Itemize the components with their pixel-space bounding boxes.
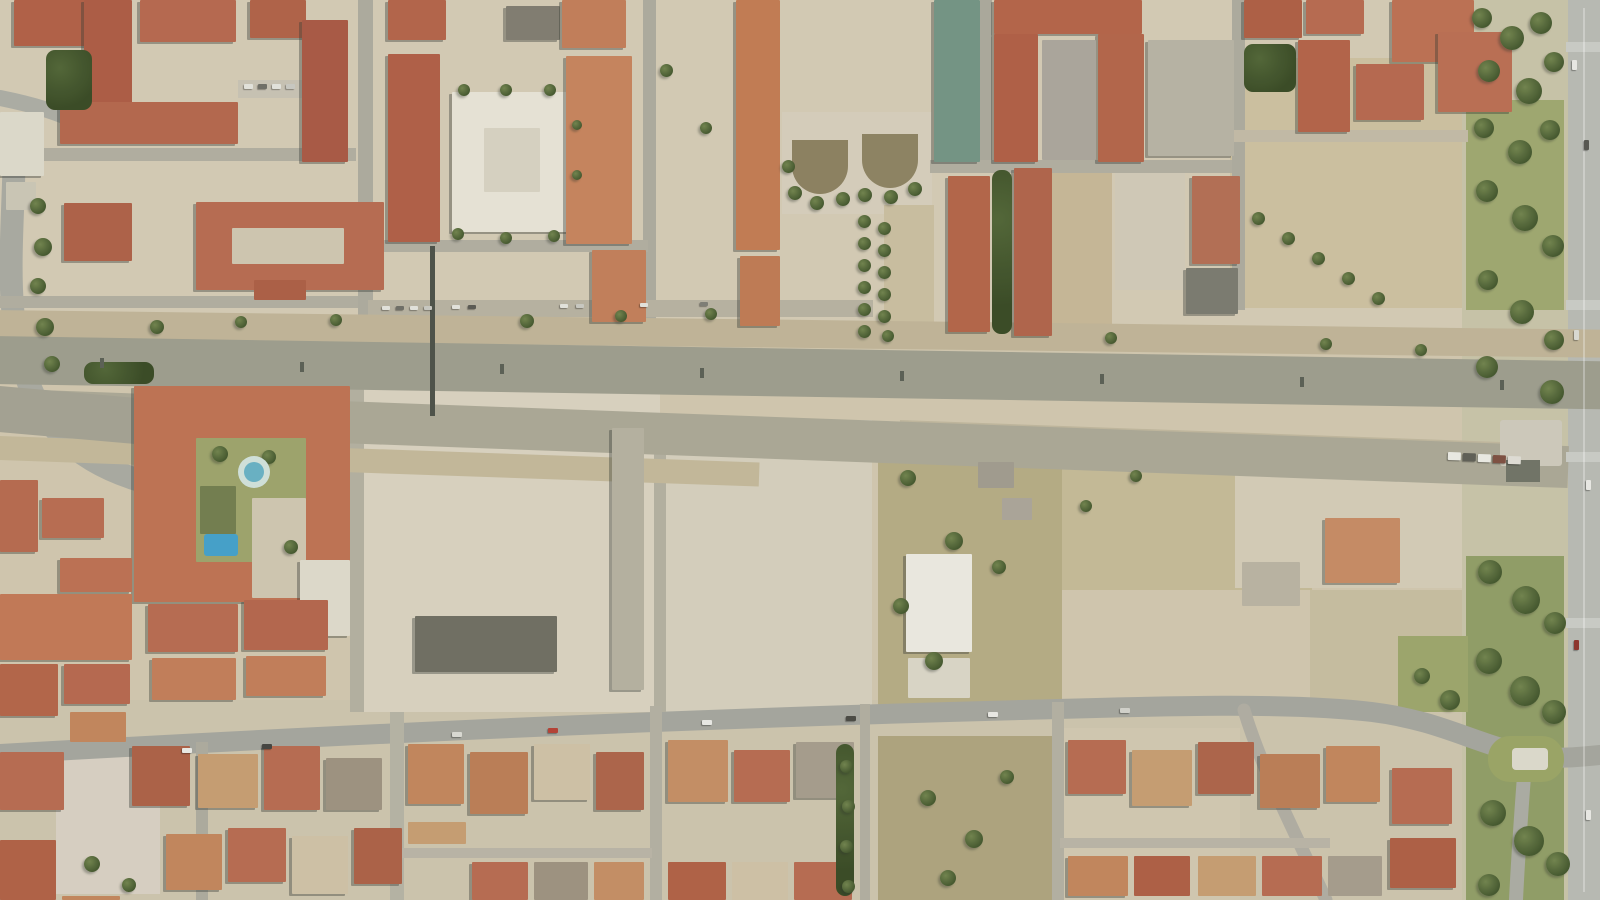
building: [326, 758, 382, 810]
car: [1584, 140, 1589, 150]
car: [1586, 480, 1591, 490]
tree: [122, 878, 136, 892]
building: [250, 0, 306, 38]
building: [668, 740, 728, 802]
building: [388, 54, 440, 242]
building: [1132, 750, 1192, 806]
building: [534, 744, 590, 800]
rect-pool: [204, 534, 238, 556]
tree: [858, 281, 871, 294]
building: [562, 0, 626, 48]
tree: [1415, 344, 1427, 356]
tree: [212, 446, 228, 462]
tree: [836, 192, 850, 206]
building: [0, 664, 58, 716]
building: [0, 480, 38, 552]
building: [0, 112, 44, 176]
mast: [900, 371, 904, 381]
tree: [893, 598, 909, 614]
car: [576, 304, 584, 308]
tree: [992, 560, 1006, 574]
tree: [945, 532, 963, 550]
rail-car: [1463, 453, 1476, 461]
tree: [235, 316, 247, 328]
car: [396, 306, 404, 310]
tree: [782, 160, 795, 173]
building: [0, 594, 132, 660]
tree: [30, 278, 46, 294]
rail-car: [1508, 456, 1521, 464]
car: [700, 302, 708, 306]
tree: [44, 356, 60, 372]
tree: [1312, 252, 1325, 265]
tree: [858, 325, 871, 338]
building: [148, 604, 238, 652]
tree: [1478, 874, 1500, 896]
tree: [1478, 270, 1498, 290]
rail-car: [1493, 455, 1506, 463]
building: [1014, 168, 1052, 336]
building: [1042, 40, 1096, 160]
tree: [920, 790, 936, 806]
tree: [878, 222, 891, 235]
tree: [572, 120, 582, 130]
building: [354, 828, 402, 884]
building: [534, 862, 588, 900]
building: [484, 128, 540, 192]
tree: [1544, 52, 1564, 72]
building: [415, 616, 557, 672]
tree: [882, 330, 894, 342]
mast: [300, 362, 304, 372]
building: [166, 834, 222, 890]
tree: [884, 190, 898, 204]
tree: [34, 238, 52, 256]
building: [388, 0, 446, 40]
tree: [660, 64, 673, 77]
building: [906, 554, 972, 652]
aerial-map-canvas[interactable]: Aerial orthophoto of a Mediterranean urb…: [0, 0, 1600, 900]
building: [408, 822, 466, 844]
tree: [1478, 560, 1502, 584]
tree: [858, 215, 871, 228]
tree: [965, 830, 983, 848]
tree: [1510, 676, 1540, 706]
building: [1068, 740, 1126, 794]
car: [262, 744, 272, 749]
building: [948, 176, 990, 332]
building: [566, 56, 632, 244]
street-v: [650, 706, 662, 900]
mast: [1300, 377, 1304, 387]
car: [182, 748, 192, 753]
tree: [36, 318, 54, 336]
street-v: [980, 0, 992, 162]
building: [1298, 40, 1350, 132]
tree: [878, 288, 891, 301]
tree: [84, 856, 100, 872]
tree: [925, 652, 943, 670]
tree: [1512, 205, 1538, 231]
tree: [858, 259, 871, 272]
car: [410, 306, 418, 310]
tree: [150, 320, 164, 334]
car: [702, 720, 712, 725]
round-pool-water: [244, 462, 264, 482]
tree: [1476, 180, 1498, 202]
tree: [615, 310, 627, 322]
tree: [1474, 118, 1494, 138]
building: [292, 836, 348, 894]
building: [408, 744, 464, 804]
building: [1356, 64, 1424, 120]
tree: [500, 84, 512, 96]
tree: [1542, 700, 1566, 724]
building: [1325, 518, 1400, 583]
car: [1574, 330, 1579, 340]
tree: [1500, 26, 1524, 50]
tree: [842, 800, 855, 813]
tree: [705, 308, 717, 320]
tree: [858, 237, 871, 250]
building: [1186, 268, 1238, 314]
building: [0, 840, 56, 900]
tree: [1544, 612, 1566, 634]
building: [60, 558, 132, 592]
tree: [1476, 648, 1502, 674]
car: [988, 712, 998, 717]
building: [1242, 562, 1300, 606]
building: [612, 428, 644, 690]
tree-block: [1244, 44, 1296, 92]
building: [152, 658, 236, 700]
tree-block: [46, 50, 92, 110]
building: [254, 280, 306, 300]
tree: [1478, 60, 1500, 82]
building: [232, 228, 344, 264]
tree: [788, 186, 802, 200]
tree: [1542, 235, 1564, 257]
car: [424, 306, 432, 310]
building: [64, 203, 132, 261]
building: [994, 0, 1142, 34]
tree: [700, 122, 712, 134]
car: [468, 305, 476, 309]
building: [246, 656, 326, 696]
tree: [30, 198, 46, 214]
tree: [810, 196, 824, 210]
tree-block: [84, 362, 154, 384]
tree: [858, 303, 871, 316]
building: [70, 712, 126, 742]
car: [382, 306, 390, 310]
building: [472, 862, 528, 900]
car: [258, 84, 267, 89]
tree: [548, 230, 560, 242]
tree: [900, 470, 916, 486]
building: [1002, 498, 1032, 520]
building: [594, 862, 644, 900]
car: [452, 305, 460, 309]
tree: [840, 840, 853, 853]
building: [1306, 0, 1364, 34]
rail-car: [1448, 452, 1461, 460]
building: [0, 752, 64, 810]
building: [244, 600, 328, 650]
tree: [940, 870, 956, 886]
building: [934, 0, 980, 162]
tree: [1372, 292, 1385, 305]
building: [1244, 0, 1302, 38]
tree: [544, 84, 556, 96]
tree: [1105, 332, 1117, 344]
mast: [1500, 380, 1504, 390]
tree: [520, 314, 534, 328]
tree: [858, 188, 872, 202]
tree: [1540, 120, 1560, 140]
building: [302, 20, 348, 162]
building: [228, 828, 286, 882]
tree: [1476, 356, 1498, 378]
tree: [1480, 800, 1506, 826]
building: [62, 896, 120, 900]
building: [64, 664, 130, 704]
mast: [700, 368, 704, 378]
tree: [878, 310, 891, 323]
tree: [452, 228, 464, 240]
building: [1148, 40, 1234, 156]
building: [1390, 838, 1456, 888]
tree: [330, 314, 342, 326]
building: [1192, 176, 1240, 264]
tree-block: [992, 170, 1012, 334]
building: [140, 0, 236, 42]
building: [994, 34, 1038, 162]
building: [1392, 768, 1452, 824]
car: [1120, 708, 1130, 713]
tree: [500, 232, 512, 244]
mast: [500, 364, 504, 374]
tree: [1080, 500, 1092, 512]
building: [1098, 34, 1144, 162]
building: [1068, 856, 1128, 896]
tree: [1282, 232, 1295, 245]
building: [736, 0, 780, 250]
building: [978, 462, 1014, 488]
building: [596, 752, 644, 810]
mast: [1100, 374, 1104, 384]
building: [506, 6, 560, 40]
building: [42, 498, 104, 538]
building: [1198, 742, 1254, 794]
car: [1586, 810, 1591, 820]
tree: [1342, 272, 1355, 285]
alley-h: [396, 848, 652, 858]
tree: [1530, 12, 1552, 34]
building: [732, 862, 788, 900]
tree: [842, 880, 855, 893]
island-pad: [1512, 748, 1548, 770]
building: [1260, 754, 1320, 808]
tree: [1544, 330, 1564, 350]
tree: [1516, 78, 1542, 104]
tree: [1546, 852, 1570, 876]
building: [740, 256, 780, 326]
tree: [1252, 212, 1265, 225]
street-v: [1052, 702, 1064, 900]
alley-h: [1060, 838, 1330, 848]
car: [560, 304, 568, 308]
tree: [284, 540, 298, 554]
tree: [1414, 668, 1430, 684]
street-v: [860, 704, 870, 900]
tree: [878, 244, 891, 257]
car: [244, 84, 253, 89]
building: [264, 746, 320, 810]
tree: [572, 170, 582, 180]
building: [734, 750, 790, 802]
tree: [1540, 380, 1564, 404]
tree: [458, 84, 470, 96]
car: [548, 728, 558, 733]
tree: [878, 266, 891, 279]
building: [132, 746, 190, 806]
building: [470, 752, 528, 814]
building: [200, 486, 236, 534]
tree: [1514, 826, 1544, 856]
street-h: [0, 296, 372, 308]
car: [846, 716, 856, 721]
car: [272, 84, 281, 89]
tree: [1440, 690, 1460, 710]
building: [198, 754, 258, 808]
rail-car: [1478, 454, 1491, 462]
building: [1198, 856, 1256, 896]
car: [1572, 60, 1577, 70]
tree: [1320, 338, 1332, 350]
tree: [840, 760, 853, 773]
tree: [1508, 140, 1532, 164]
pylon: [430, 246, 435, 416]
tree: [1512, 586, 1540, 614]
tree: [1472, 8, 1492, 28]
tree: [1510, 300, 1534, 324]
tree: [1130, 470, 1142, 482]
tree: [1000, 770, 1014, 784]
building: [1262, 856, 1322, 896]
building: [668, 862, 726, 900]
building: [1326, 746, 1380, 802]
car: [1574, 640, 1579, 650]
car: [640, 303, 648, 307]
tree: [908, 182, 922, 196]
car: [286, 84, 295, 89]
building: [1134, 856, 1190, 896]
mast: [100, 358, 104, 368]
car: [452, 732, 462, 737]
building: [1328, 856, 1382, 896]
